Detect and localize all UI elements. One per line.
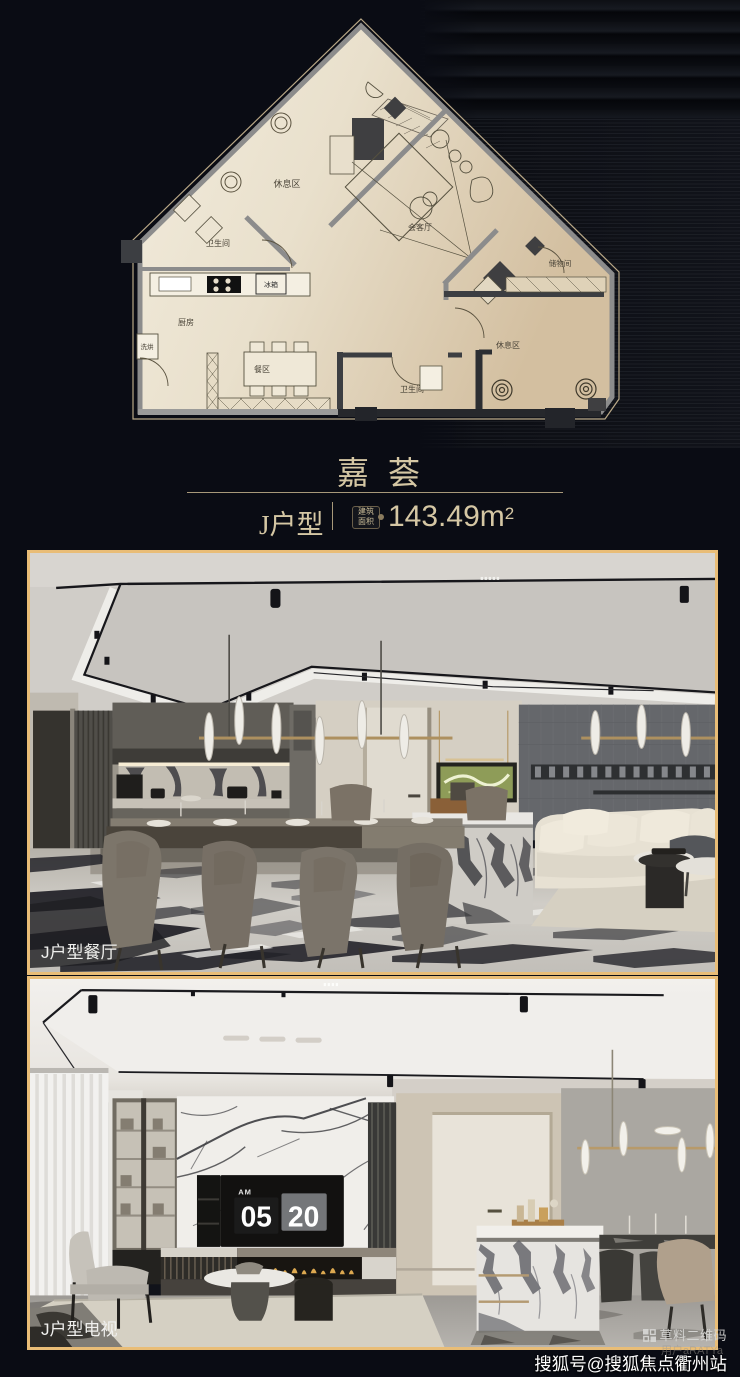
- svg-text:冰箱: 冰箱: [264, 280, 278, 289]
- svg-text:05: 05: [241, 1201, 272, 1233]
- svg-text:餐区: 餐区: [254, 365, 270, 374]
- svg-text:厨房: 厨房: [178, 317, 194, 327]
- svg-text:休息区: 休息区: [273, 178, 300, 189]
- svg-text:洗烘: 洗烘: [141, 342, 155, 351]
- svg-text:20: 20: [288, 1201, 319, 1233]
- svg-text:休息区: 休息区: [496, 340, 520, 350]
- svg-text:AM: AM: [238, 1187, 252, 1196]
- svg-text:会客厅: 会客厅: [408, 222, 432, 232]
